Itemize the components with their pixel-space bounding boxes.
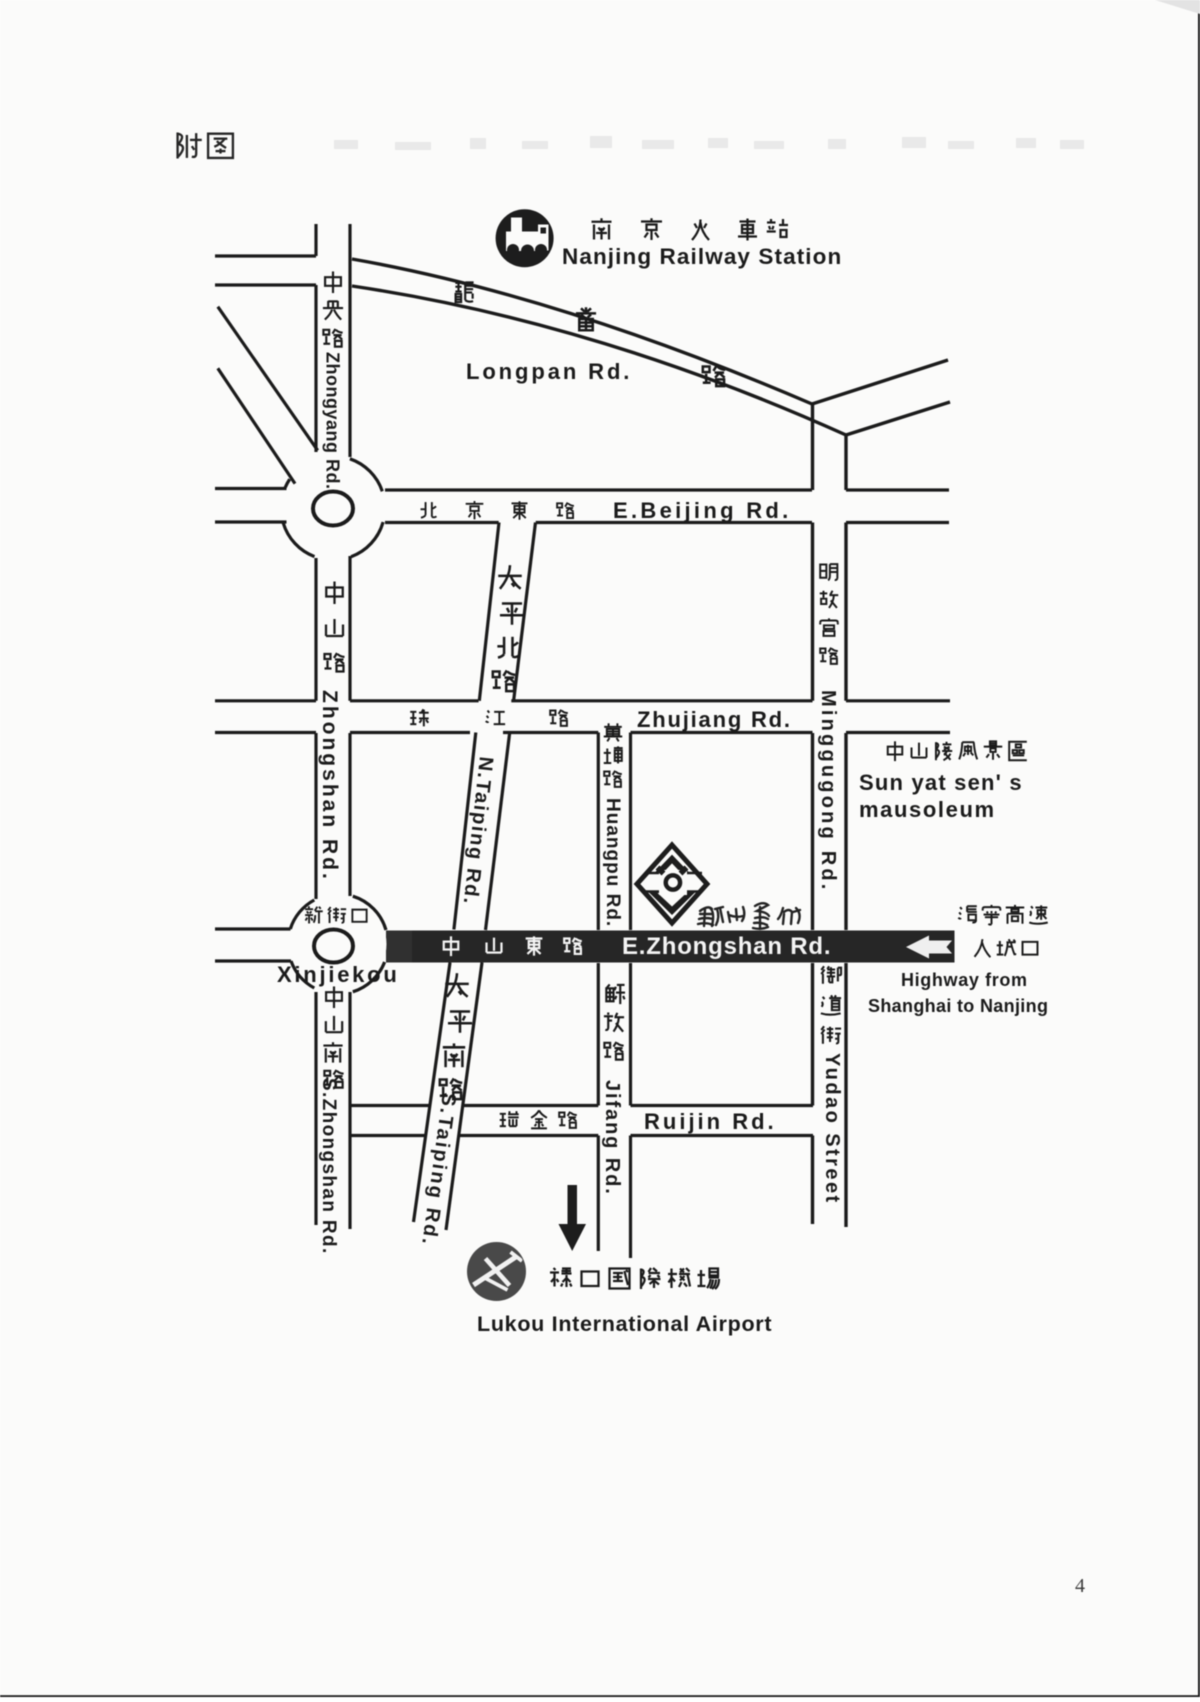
svg-text:Longpan Rd.: Longpan Rd.: [466, 359, 632, 384]
svg-text:Yudao Street: Yudao Street: [821, 1053, 843, 1205]
svg-text:4: 4: [1075, 1575, 1085, 1597]
svg-text:Shanghai to Nanjing: Shanghai to Nanjing: [868, 996, 1048, 1016]
svg-text:Zhujiang Rd.: Zhujiang Rd.: [637, 707, 792, 732]
svg-text:E.Beijing Rd.: E.Beijing Rd.: [613, 498, 792, 523]
svg-text:E.Zhongshan Rd.: E.Zhongshan Rd.: [622, 933, 831, 960]
svg-text:mausoleum: mausoleum: [859, 797, 996, 822]
svg-text:Jifang Rd.: Jifang Rd.: [601, 1080, 623, 1196]
svg-text:Zhongyang Rd.: Zhongyang Rd.: [323, 352, 343, 489]
svg-text:Sun yat sen' s: Sun yat sen' s: [859, 770, 1023, 795]
svg-text:Ruijin Rd.: Ruijin Rd.: [644, 1109, 777, 1134]
svg-text:S.Zhongshan Rd.: S.Zhongshan Rd.: [318, 1078, 339, 1255]
svg-text:Minggugong Rd.: Minggugong Rd.: [817, 690, 839, 893]
svg-text:Highway from: Highway from: [901, 970, 1028, 990]
svg-text:Xinjiekou: Xinjiekou: [277, 962, 400, 987]
svg-text:Nanjing Railway Station: Nanjing Railway Station: [562, 244, 842, 269]
svg-text:Zhongshan Rd.: Zhongshan Rd.: [318, 690, 341, 882]
svg-text:Lukou International Airport: Lukou International Airport: [477, 1312, 772, 1336]
svg-text:Huangpu Rd.: Huangpu Rd.: [602, 798, 623, 927]
